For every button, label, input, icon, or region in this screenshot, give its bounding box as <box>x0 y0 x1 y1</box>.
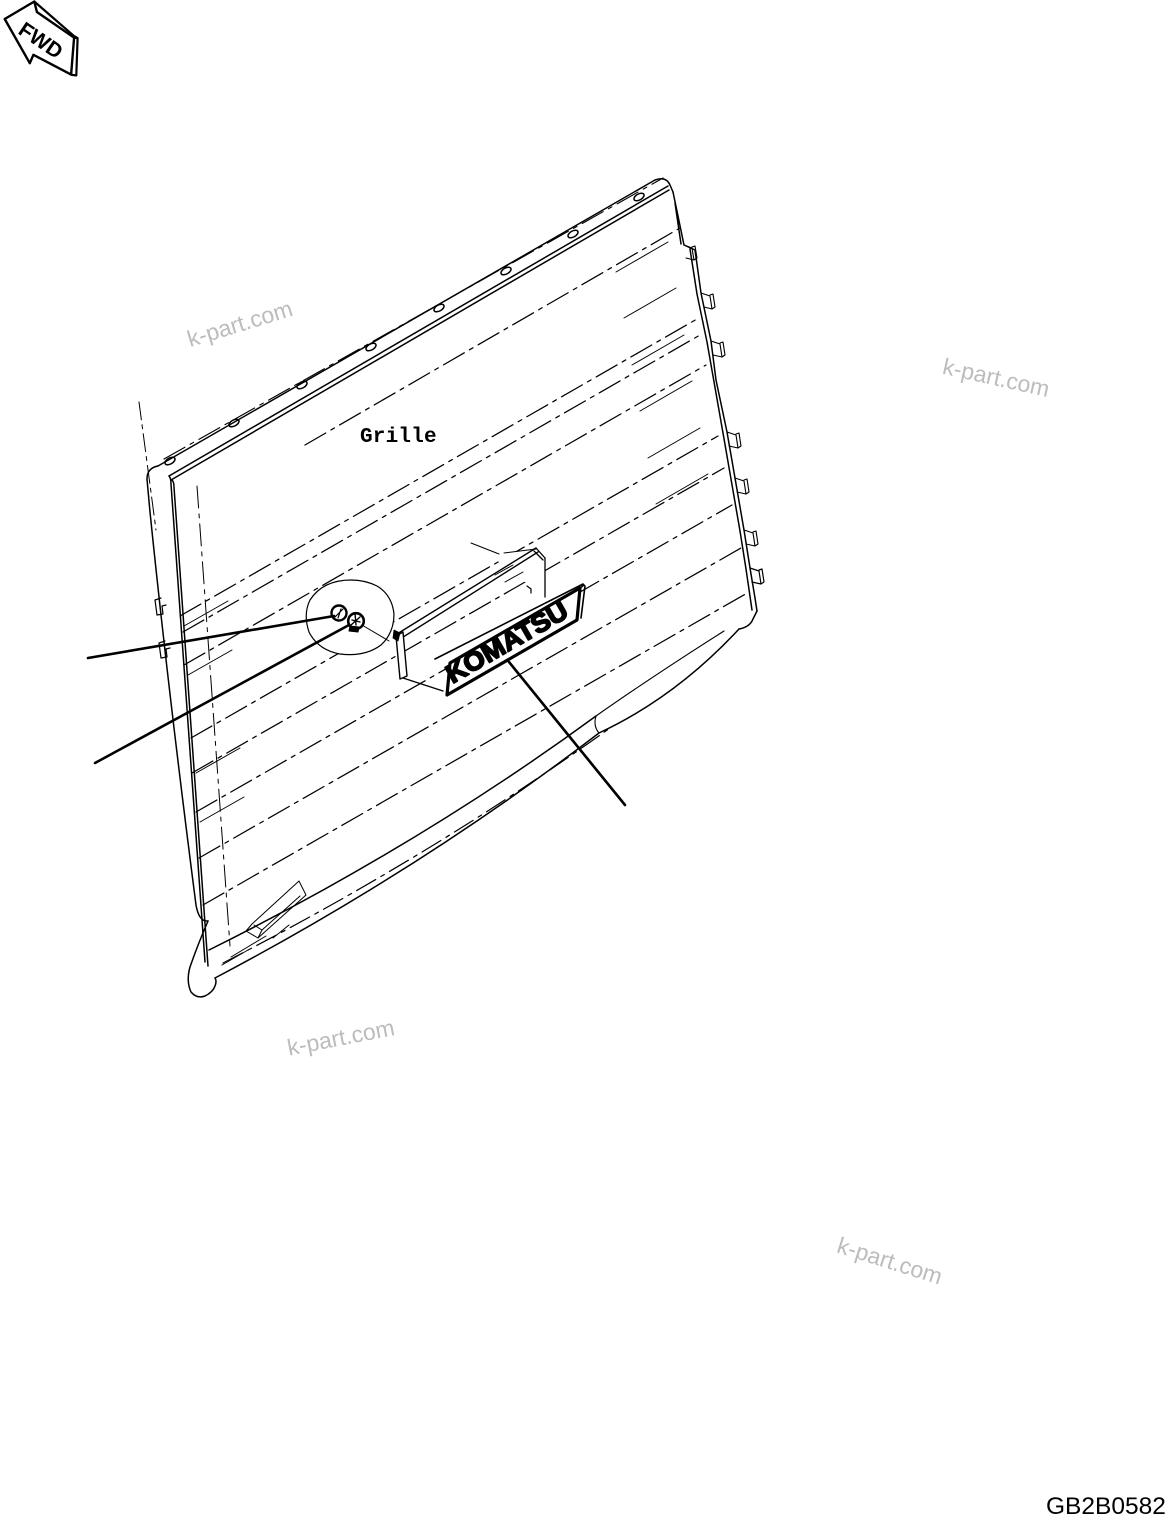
svg-text:Grille: Grille <box>360 426 437 449</box>
svg-text:KOMATSU: KOMATSU <box>440 595 573 689</box>
svg-text:GB2B0582: GB2B0582 <box>1046 1493 1166 1517</box>
